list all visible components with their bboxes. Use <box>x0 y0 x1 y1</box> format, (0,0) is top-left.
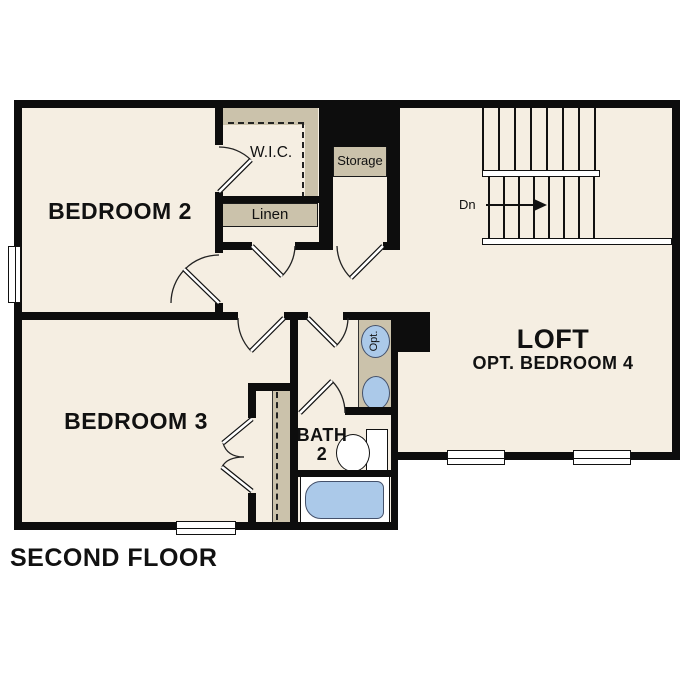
optional-sink-label: Opt. <box>368 331 380 352</box>
stairs-mid-rail <box>482 170 600 177</box>
page-title: SECOND FLOOR <box>10 544 217 573</box>
wall-mass-above-storage <box>319 100 395 147</box>
bedroom2-label: BEDROOM 2 <box>20 198 220 225</box>
bathtub <box>305 481 384 519</box>
window-loft-1 <box>447 450 505 465</box>
window-mullion <box>574 458 630 459</box>
wall-bath-east-lower <box>391 452 398 530</box>
window-loft-2 <box>573 450 631 465</box>
wall-linen-south-west <box>222 242 252 250</box>
wall-bath-mid <box>345 407 391 415</box>
wall-stairwell-west <box>387 100 400 247</box>
bath-label-line2: 2 <box>296 445 348 464</box>
floor-plan: BEDROOM 2 BEDROOM 3 LOFT OPT. BEDROOM 4 … <box>0 0 687 687</box>
wall-linen-south-east <box>295 242 327 250</box>
vanity-sink <box>362 376 390 410</box>
window-bedroom2 <box>8 246 21 303</box>
wic-label: W.I.C. <box>250 144 292 162</box>
wall-bath-east <box>391 347 398 452</box>
storage-label: Storage <box>333 153 387 168</box>
closet-shelf-dashline <box>276 392 278 520</box>
wall-closet-west-lower <box>248 493 256 522</box>
stairs-upper-flight <box>482 108 596 172</box>
loft-label: LOFT <box>453 324 653 355</box>
bedroom3-closet-shelf <box>272 390 291 522</box>
linen-label: Linen <box>222 206 318 223</box>
bath-label: BATH 2 <box>296 426 348 464</box>
window-mullion <box>15 247 16 302</box>
wall-right <box>672 100 680 460</box>
window-bedroom3 <box>176 521 236 535</box>
wall-bedroom-divider <box>14 312 238 320</box>
wall-bath-west <box>290 312 298 530</box>
window-mullion <box>448 458 504 459</box>
wall-closet-north <box>248 383 297 391</box>
bath-label-line1: BATH <box>296 426 348 445</box>
wic-shelf-dashline-side <box>302 122 304 198</box>
wic-shelf-dashline-top <box>228 122 304 124</box>
loft-option-label: OPT. BEDROOM 4 <box>453 353 653 374</box>
stairs-bottom-rail <box>482 238 672 245</box>
wic-shelf-side <box>305 125 318 196</box>
wall-loft-bottom <box>391 452 680 460</box>
wall-tub-north <box>296 470 391 477</box>
bedroom3-label: BEDROOM 3 <box>36 408 236 435</box>
stairs-down-label: Dn <box>459 197 476 212</box>
wall-bedroom2-east-upper <box>215 100 223 145</box>
stairs-down-arrow-line <box>486 204 534 206</box>
wall-block-loft <box>391 312 430 352</box>
wall-wic-south <box>222 196 325 203</box>
wall-storage-south-east <box>383 242 400 250</box>
stairs-down-arrow-head <box>534 199 547 211</box>
window-mullion <box>177 528 235 529</box>
